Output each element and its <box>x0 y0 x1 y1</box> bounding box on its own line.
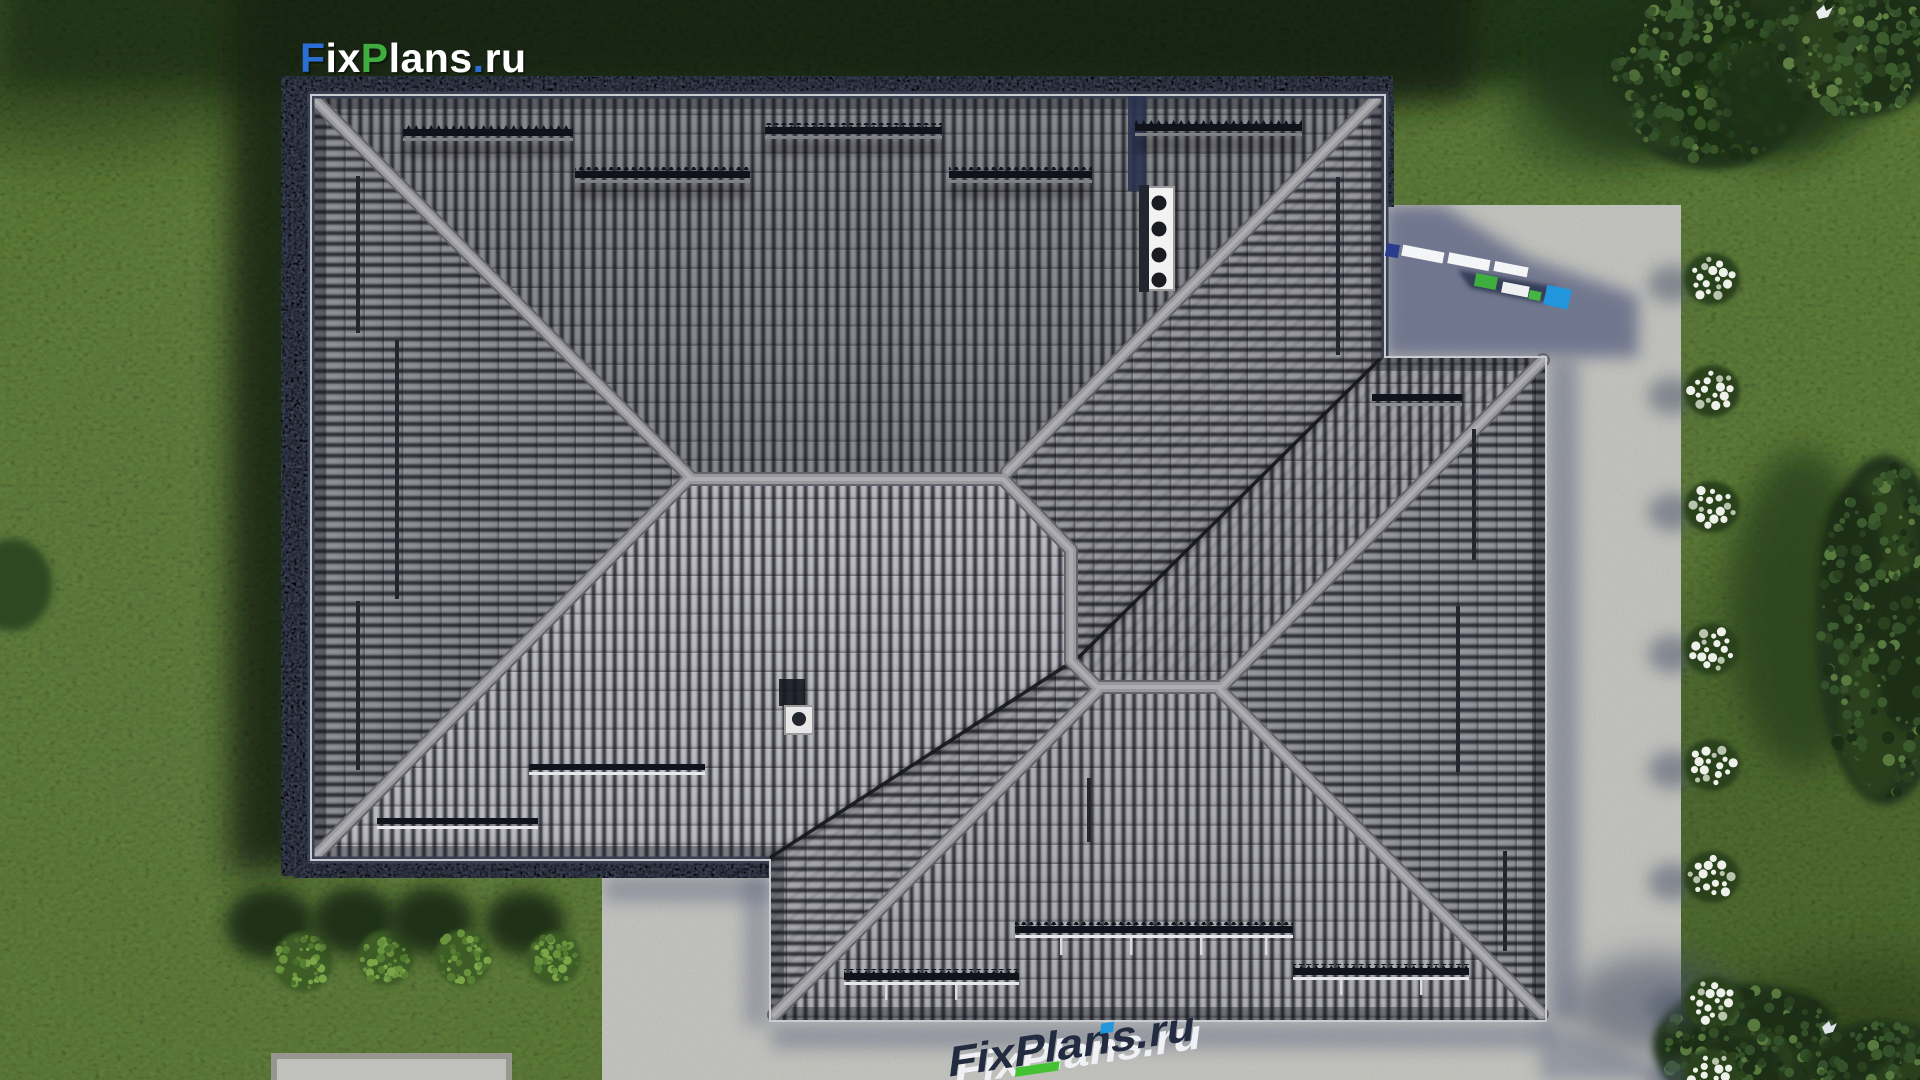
svg-text:FixPlans.ru: FixPlans.ru <box>300 35 527 81</box>
